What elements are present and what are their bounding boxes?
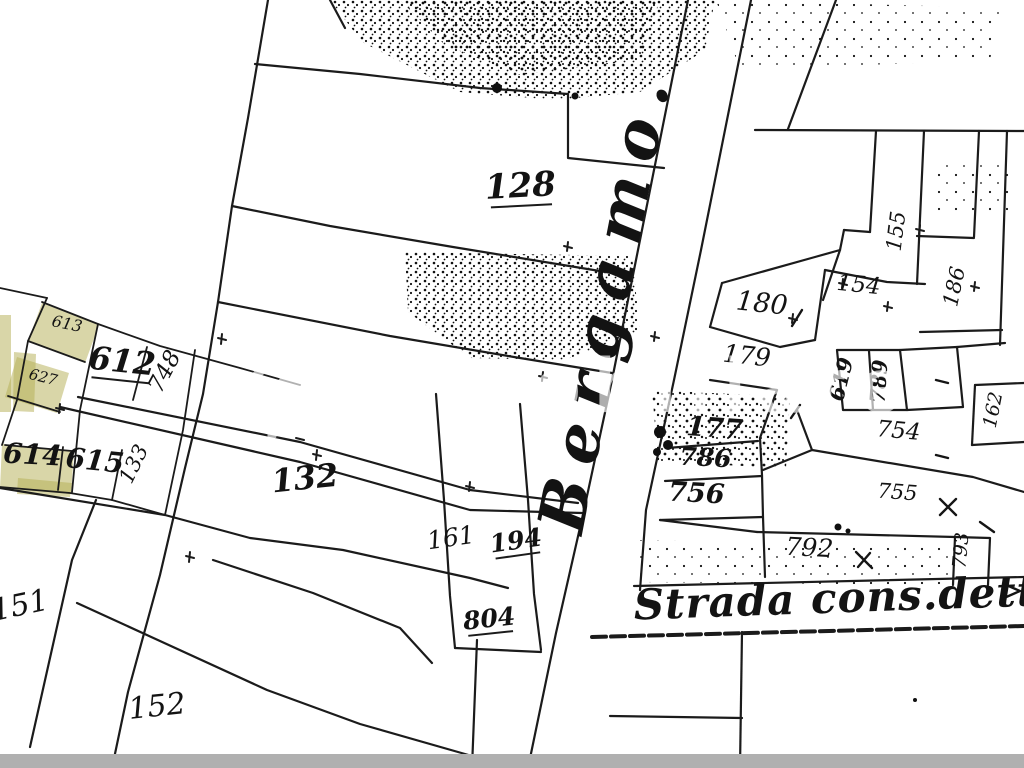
stipple-right-patch [933, 160, 1010, 215]
parcel-label-756: 756 [667, 477, 725, 511]
parcel-label-179: 179 [722, 339, 773, 373]
parcel-number-labels: 1281321611948041511526127486136276146151… [0, 164, 1007, 727]
parcel-label-132: 132 [270, 456, 340, 501]
parcel-label-128: 128 [484, 164, 557, 208]
parcel-label-177: 177 [685, 411, 744, 446]
stipple-top-right [716, 0, 1000, 70]
boundary-blob [492, 83, 502, 93]
parcel-label-151: 151 [0, 583, 52, 629]
parcel-label-614: 614 [2, 437, 62, 473]
parcel-label-789: 789 [865, 358, 893, 404]
x-mark-755 [940, 499, 956, 515]
parcel-label-792: 792 [785, 532, 834, 563]
parcel-label-162: 162 [979, 390, 1008, 430]
parcel-label-786: 786 [679, 442, 733, 474]
bottom-bar [0, 754, 1024, 768]
parcel-label-180: 180 [735, 285, 790, 321]
cadastral-map-page: 1281321611948041511526127486136276146151… [0, 0, 1024, 768]
parcel-label-619: 619 [823, 355, 858, 404]
parcel-label-755: 755 [877, 479, 919, 506]
parcel-label-186: 186 [938, 264, 970, 308]
parcel-label-754: 754 [876, 416, 922, 446]
parcel-label-155: 155 [882, 210, 911, 253]
parcel-label-793: 793 [948, 531, 973, 569]
parcel-label-161: 161 [425, 520, 476, 555]
cadastral-map: 1281321611948041511526127486136276146151… [0, 0, 1024, 768]
parcel-label-152: 152 [127, 686, 188, 727]
parcel-label-154: 154 [836, 270, 882, 300]
